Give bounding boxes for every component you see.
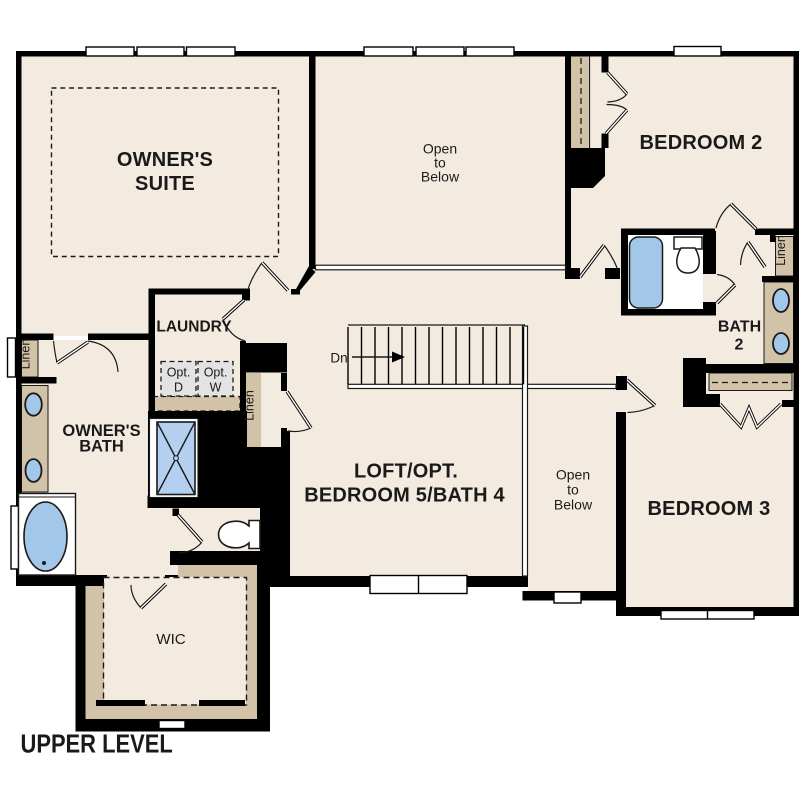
svg-text:Below: Below xyxy=(421,169,460,185)
svg-text:Linen: Linen xyxy=(243,390,257,421)
svg-text:BEDROOM 5/BATH 4: BEDROOM 5/BATH 4 xyxy=(304,485,505,507)
svg-text:Opt.: Opt. xyxy=(167,366,191,380)
svg-text:Dn: Dn xyxy=(330,351,347,366)
svg-text:BATH: BATH xyxy=(79,438,124,456)
svg-text:SUITE: SUITE xyxy=(135,173,195,195)
svg-text:BEDROOM 3: BEDROOM 3 xyxy=(648,498,771,520)
svg-text:Linen: Linen xyxy=(19,339,33,370)
svg-text:D: D xyxy=(174,381,183,395)
svg-text:LOFT/OPT.: LOFT/OPT. xyxy=(354,461,458,483)
svg-text:W: W xyxy=(210,381,222,395)
svg-text:2: 2 xyxy=(735,337,744,354)
svg-text:BATH: BATH xyxy=(718,319,761,336)
svg-text:Linen: Linen xyxy=(774,235,788,266)
svg-text:Open: Open xyxy=(556,467,590,483)
svg-text:to: to xyxy=(567,482,579,498)
svg-text:OWNER'S: OWNER'S xyxy=(117,149,213,171)
svg-text:UPPER LEVEL: UPPER LEVEL xyxy=(21,730,173,759)
svg-text:BEDROOM 2: BEDROOM 2 xyxy=(640,132,763,154)
svg-text:Opt.: Opt. xyxy=(204,366,228,380)
svg-text:WIC: WIC xyxy=(156,631,186,648)
svg-text:Below: Below xyxy=(554,497,593,513)
svg-text:LAUNDRY: LAUNDRY xyxy=(156,319,232,336)
